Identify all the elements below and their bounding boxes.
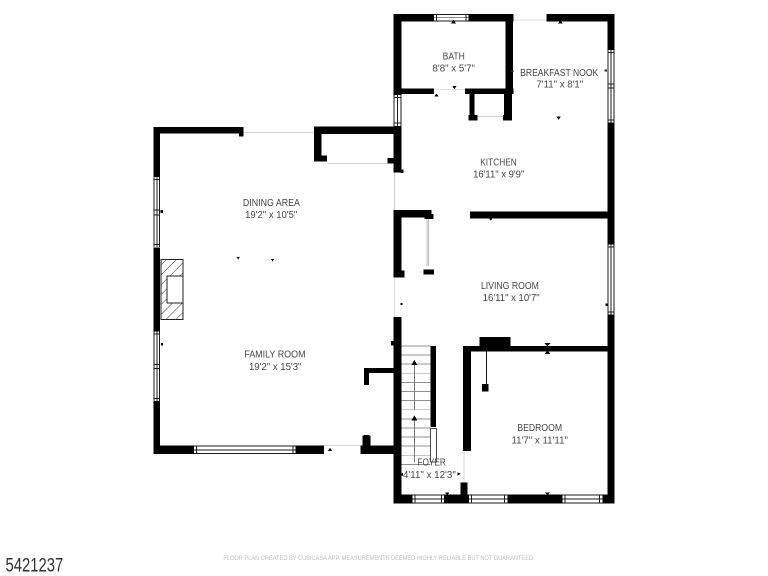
svg-text:16'11" x 10'7": 16'11" x 10'7" bbox=[483, 293, 540, 304]
svg-text:KITCHEN: KITCHEN bbox=[480, 157, 516, 168]
svg-text:19'2" x 15'3": 19'2" x 15'3" bbox=[249, 362, 302, 373]
svg-text:LIVING ROOM: LIVING ROOM bbox=[481, 280, 539, 291]
svg-text:BEDROOM: BEDROOM bbox=[517, 423, 562, 434]
svg-text:16'11" x 9'9": 16'11" x 9'9" bbox=[473, 169, 525, 180]
svg-text:FAMILY ROOM: FAMILY ROOM bbox=[244, 349, 305, 359]
svg-text:5421237: 5421237 bbox=[6, 555, 64, 576]
svg-text:BREAKFAST NOOK: BREAKFAST NOOK bbox=[520, 67, 599, 78]
svg-text:FLOOR PLAN CREATED BY CUBICASA: FLOOR PLAN CREATED BY CUBICASA APP. MEAS… bbox=[223, 556, 535, 562]
svg-text:19'2" x 10'5": 19'2" x 10'5" bbox=[245, 210, 298, 221]
svg-text:7'11" x 8'1": 7'11" x 8'1" bbox=[536, 79, 583, 90]
svg-text:11'7" x 11'11": 11'7" x 11'11" bbox=[511, 436, 568, 447]
svg-text:FOYER: FOYER bbox=[417, 457, 446, 468]
svg-text:8'8" x 5'7": 8'8" x 5'7" bbox=[432, 63, 475, 74]
svg-text:DINING AREA: DINING AREA bbox=[243, 198, 301, 208]
svg-text:4'11" x 12'3": 4'11" x 12'3" bbox=[403, 470, 456, 481]
svg-text:BATH: BATH bbox=[443, 51, 465, 62]
